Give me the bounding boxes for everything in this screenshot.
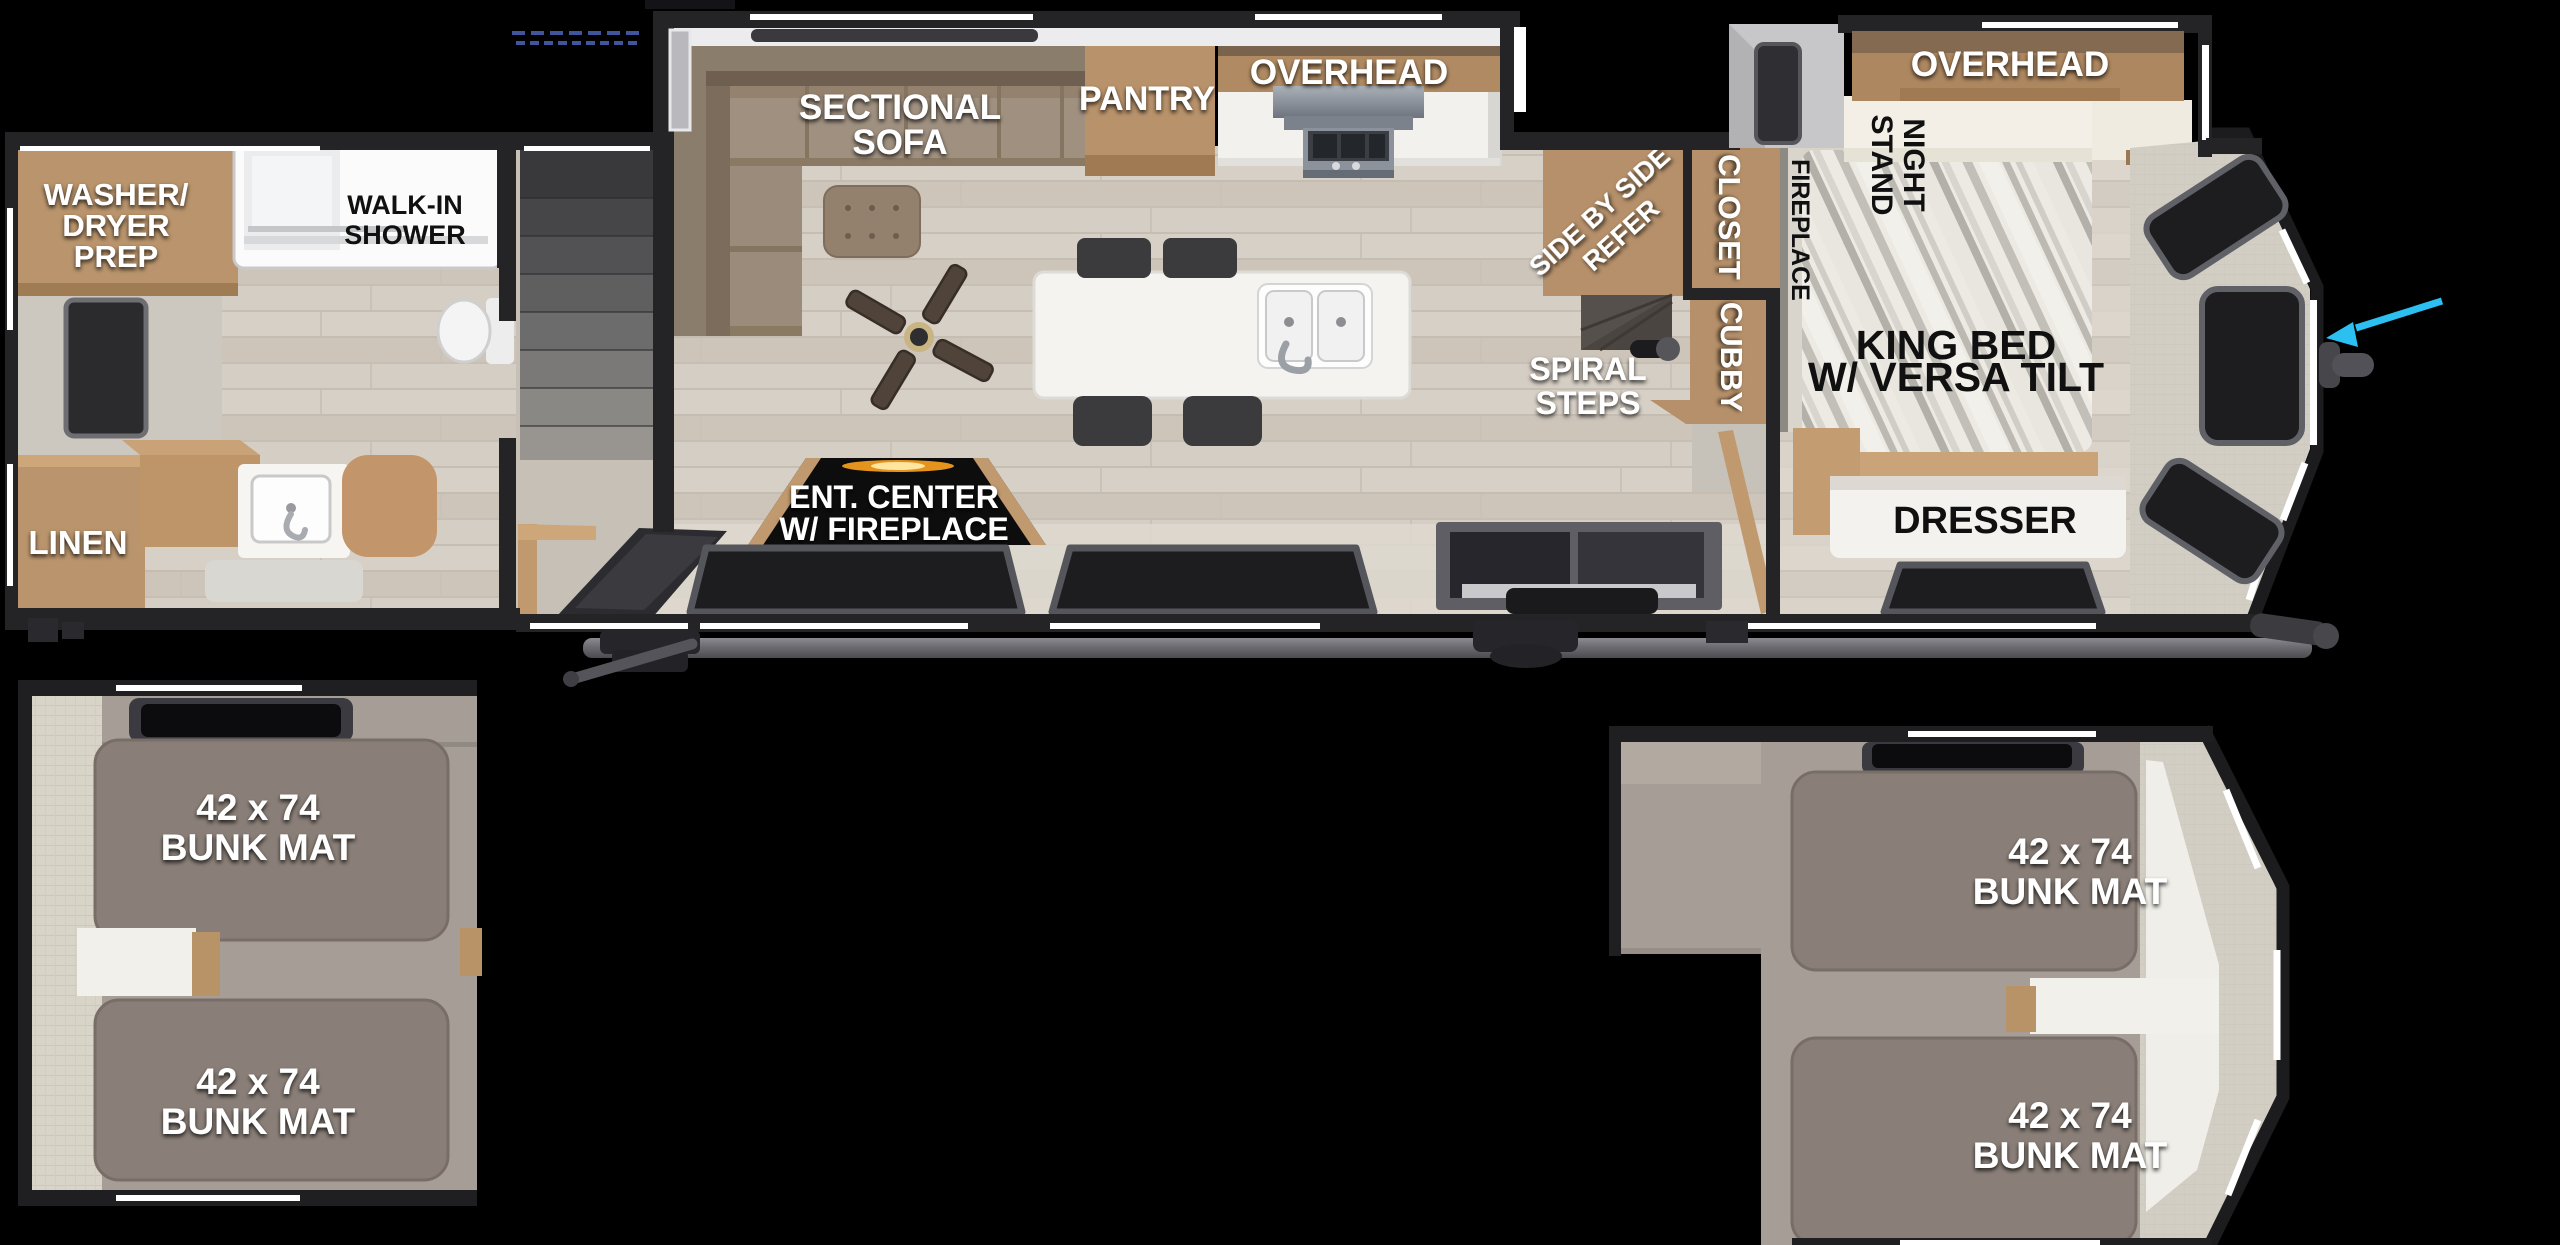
svg-text:CLOSET: CLOSET: [1712, 154, 1747, 280]
svg-text:SOFA: SOFA: [852, 123, 947, 162]
svg-text:LINEN: LINEN: [29, 524, 128, 561]
svg-text:42 x 74: 42 x 74: [2008, 1095, 2132, 1136]
svg-text:DRESSER: DRESSER: [1893, 500, 2077, 542]
svg-text:BUNK MAT: BUNK MAT: [161, 827, 356, 868]
svg-text:WASHER/: WASHER/: [44, 177, 189, 212]
svg-text:NIGHTSTAND: NIGHTSTAND: [1865, 114, 1930, 215]
svg-text:ENT. CENTER: ENT. CENTER: [789, 479, 999, 515]
svg-text:WALK-IN: WALK-IN: [347, 190, 462, 220]
svg-text:42 x 74: 42 x 74: [196, 787, 320, 828]
svg-text:STEPS: STEPS: [1536, 385, 1641, 421]
svg-text:BUNK MAT: BUNK MAT: [161, 1101, 356, 1142]
svg-text:SPIRAL: SPIRAL: [1529, 351, 1646, 387]
svg-text:CUBBY: CUBBY: [1714, 302, 1749, 413]
svg-text:OVERHEAD: OVERHEAD: [1911, 45, 2109, 84]
svg-text:DRYER: DRYER: [62, 208, 169, 243]
svg-text:PREP: PREP: [74, 239, 158, 274]
svg-text:SECTIONAL: SECTIONAL: [799, 88, 1001, 127]
svg-text:W/ FIREPLACE: W/ FIREPLACE: [779, 511, 1008, 547]
svg-text:42 x 74: 42 x 74: [2008, 831, 2132, 872]
svg-text:42 x 74: 42 x 74: [196, 1061, 320, 1102]
svg-text:SHOWER: SHOWER: [344, 220, 466, 250]
svg-text:BUNK MAT: BUNK MAT: [1973, 1135, 2168, 1176]
svg-text:PANTRY: PANTRY: [1079, 80, 1215, 118]
svg-text:OVERHEAD: OVERHEAD: [1250, 53, 1448, 92]
svg-text:FIREPLACE: FIREPLACE: [1786, 159, 1814, 301]
svg-text:BUNK MAT: BUNK MAT: [1973, 871, 2168, 912]
svg-text:W/ VERSA TILT: W/ VERSA TILT: [1808, 354, 2104, 400]
